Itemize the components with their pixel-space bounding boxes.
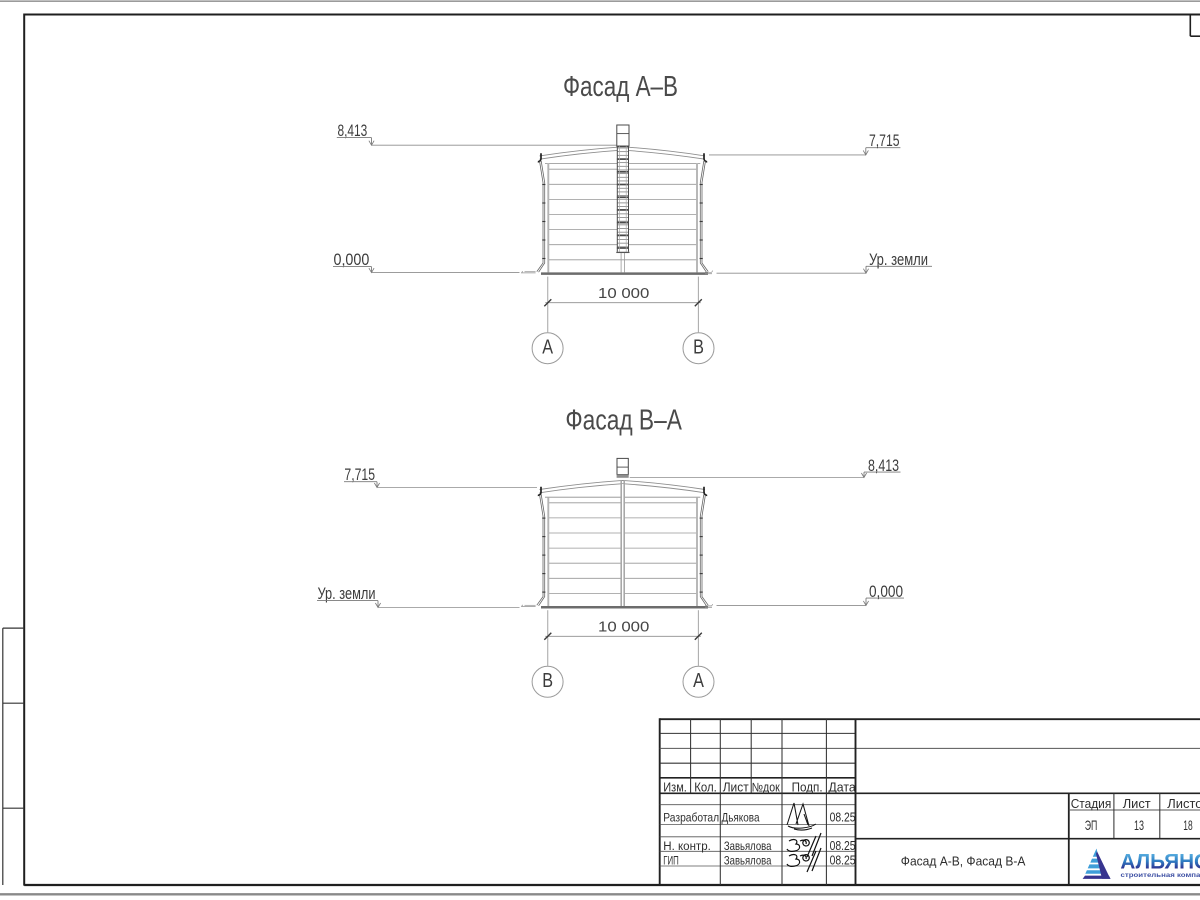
svg-text:Ур. земли: Ур. земли [869, 250, 928, 269]
svg-text:Лист: Лист [1123, 796, 1151, 811]
svg-text:Кол.: Кол. [694, 780, 717, 794]
svg-text:Завьялова: Завьялова [724, 854, 772, 868]
svg-text:ГИП: ГИП [663, 854, 679, 868]
svg-text:строительная компания: строительная компания [1121, 872, 1200, 879]
svg-text:В: В [693, 336, 704, 359]
svg-text:АЛЬЯНС: АЛЬЯНС [1120, 851, 1200, 874]
svg-text:Фасад А-В, Фасад В-А: Фасад А-В, Фасад В-А [901, 853, 1026, 868]
svg-text:Стадия: Стадия [1071, 796, 1112, 811]
svg-text:10 000: 10 000 [598, 620, 649, 636]
svg-text:08.25: 08.25 [830, 853, 856, 868]
svg-text:Фасад А–В: Фасад А–В [563, 71, 678, 103]
svg-text:В: В [542, 669, 553, 692]
svg-text:13: 13 [1134, 817, 1144, 833]
svg-text:08.25: 08.25 [830, 810, 856, 825]
svg-text:Дата: Дата [828, 780, 855, 794]
svg-text:Изм.: Изм. [663, 780, 687, 794]
svg-text:Фасад В–А: Фасад В–А [565, 405, 682, 437]
svg-text:А: А [542, 336, 553, 359]
svg-text:7,715: 7,715 [869, 131, 900, 150]
svg-text:Разработал: Разработал [663, 810, 719, 824]
svg-text:0,000: 0,000 [334, 250, 370, 269]
svg-text:Дьякова: Дьякова [722, 810, 760, 824]
svg-text:Лист: Лист [723, 780, 749, 794]
svg-text:7,715: 7,715 [344, 465, 375, 484]
svg-text:Подп.: Подп. [792, 780, 823, 794]
svg-text:8,413: 8,413 [338, 121, 368, 140]
svg-text:8,413: 8,413 [868, 456, 899, 475]
svg-text:08.25: 08.25 [830, 838, 856, 853]
svg-text:18: 18 [1183, 817, 1193, 833]
svg-text:№док: №док [752, 780, 780, 794]
svg-text:Завьялова: Завьялова [724, 839, 772, 853]
svg-text:0,000: 0,000 [869, 582, 903, 601]
svg-text:ЭП: ЭП [1085, 817, 1098, 833]
svg-text:10 000: 10 000 [598, 286, 649, 302]
svg-text:Листов: Листов [1167, 796, 1200, 811]
svg-text:А: А [693, 669, 704, 692]
svg-text:Н. контр.: Н. контр. [663, 839, 711, 853]
